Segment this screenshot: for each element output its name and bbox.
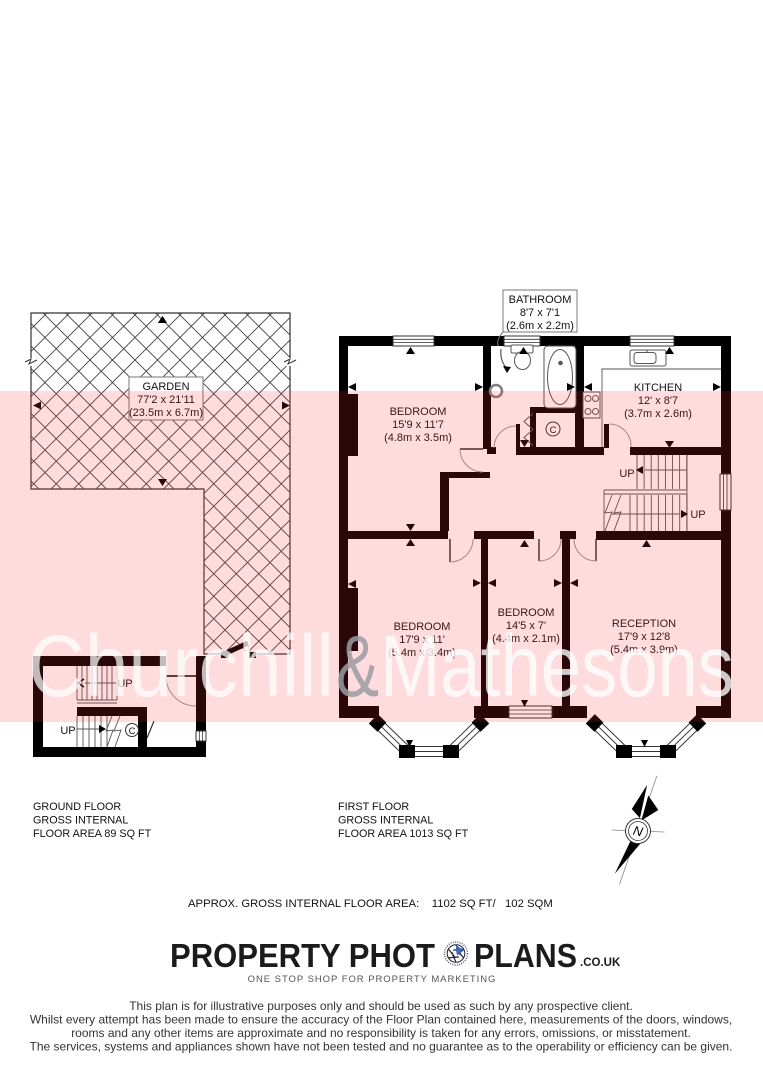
svg-text:Whilst every attempt has been: Whilst every attempt has been made to en… <box>30 1013 732 1027</box>
svg-text:PROPERTY PHOT: PROPERTY PHOT <box>170 937 435 974</box>
svg-text:GROUND FLOOR: GROUND FLOOR <box>33 801 121 813</box>
svg-text:GROSS INTERNAL: GROSS INTERNAL <box>338 815 433 827</box>
svg-text:The services, systems and appl: The services, systems and appliances sho… <box>30 1040 733 1054</box>
svg-text:Churchill: Churchill <box>28 618 334 715</box>
svg-text:Mathesons: Mathesons <box>380 618 734 715</box>
svg-text:8'7 x 7'1: 8'7 x 7'1 <box>520 307 560 319</box>
svg-text:.CO.UK: .CO.UK <box>580 957 621 969</box>
svg-text:FIRST FLOOR: FIRST FLOOR <box>338 801 409 813</box>
svg-text:UP: UP <box>60 725 75 737</box>
svg-text:(2.6m x 2.2m): (2.6m x 2.2m) <box>506 320 574 332</box>
svg-text:GROSS INTERNAL: GROSS INTERNAL <box>33 815 128 827</box>
svg-text:rooms and any other items are: rooms and any other items are approximat… <box>71 1026 691 1040</box>
svg-text:This plan is for illustrative: This plan is for illustrative purposes o… <box>129 999 633 1013</box>
svg-text:APPROX. GROSS INTERNAL FLOOR A: APPROX. GROSS INTERNAL FLOOR AREA: 1102 … <box>188 898 553 910</box>
svg-text:ONE STOP SHOP FOR PROPERTY MAR: ONE STOP SHOP FOR PROPERTY MARKETING <box>248 974 497 985</box>
svg-text:C: C <box>129 726 136 737</box>
svg-text:&: & <box>336 618 379 715</box>
svg-text:FLOOR AREA 1013 SQ FT: FLOOR AREA 1013 SQ FT <box>338 828 469 840</box>
svg-text:BATHROOM: BATHROOM <box>509 294 572 306</box>
svg-text:FLOOR AREA 89 SQ FT: FLOOR AREA 89 SQ FT <box>33 828 152 840</box>
svg-text:PLANS: PLANS <box>474 937 577 974</box>
